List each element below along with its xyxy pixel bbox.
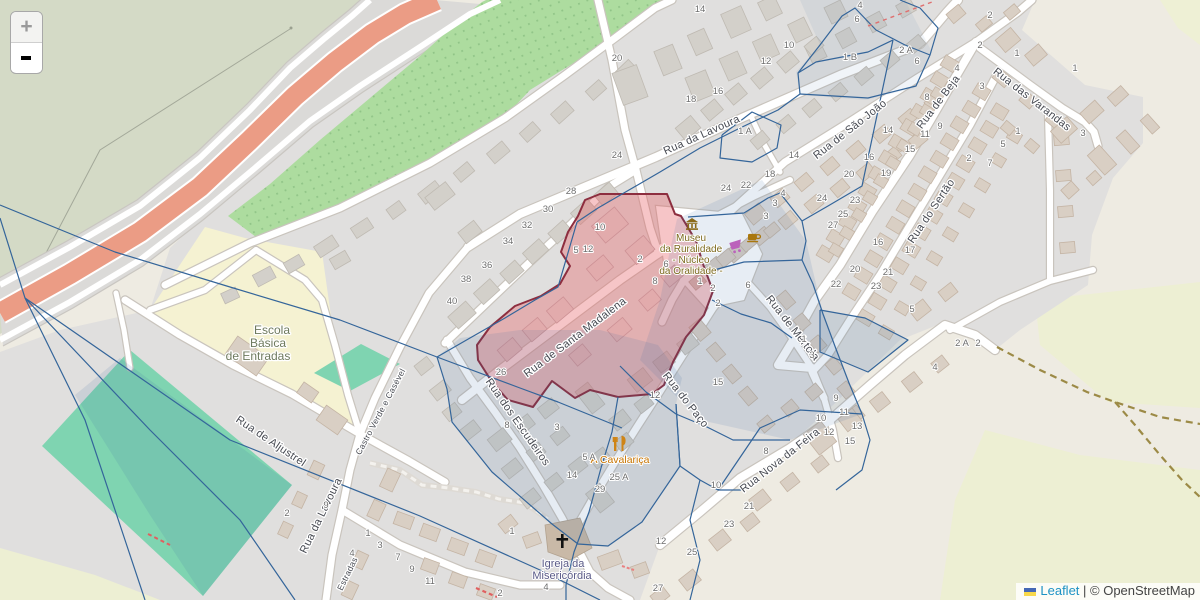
svg-text:4: 4 [349,548,354,559]
svg-text:da Ruralidade: da Ruralidade [660,244,723,255]
svg-text:32: 32 [522,220,533,231]
svg-text:1: 1 [365,528,370,539]
svg-text:Igreja da: Igreja da [542,558,586,570]
svg-text:2 A: 2 A [899,45,913,56]
svg-text:11: 11 [920,129,930,140]
svg-text:12: 12 [824,427,835,438]
svg-text:14: 14 [789,150,800,161]
svg-text:1: 1 [697,276,702,287]
svg-text:25 A: 25 A [609,472,629,483]
svg-text:10: 10 [784,40,795,51]
svg-text:24: 24 [817,193,828,204]
svg-text:1: 1 [1072,63,1077,74]
svg-text:15: 15 [845,436,856,447]
svg-text:12: 12 [583,244,594,255]
svg-text:40: 40 [447,296,458,307]
svg-text:10: 10 [816,413,827,424]
svg-text:14: 14 [883,125,894,136]
svg-text:9: 9 [409,564,414,575]
svg-text:5: 5 [909,304,914,315]
svg-text:5: 5 [573,245,578,256]
svg-text:3: 3 [763,211,768,222]
svg-text:1: 1 [1014,48,1019,59]
svg-text:6: 6 [914,56,919,67]
svg-text:7: 7 [987,158,992,169]
svg-text:da Oralidade -: da Oralidade - [659,266,722,277]
svg-text:9: 9 [833,393,838,404]
svg-text:12: 12 [656,536,667,547]
svg-text:36: 36 [482,260,493,271]
svg-text:4: 4 [954,63,959,74]
svg-text:3: 3 [377,540,382,551]
svg-text:23: 23 [850,195,861,206]
svg-text:Misericórdia: Misericórdia [532,570,592,582]
svg-text:9: 9 [937,121,942,132]
svg-text:2: 2 [497,588,502,599]
svg-text:15: 15 [713,377,724,388]
svg-text:12: 12 [650,390,661,401]
svg-text:de Entradas: de Entradas [226,349,291,363]
svg-text:21: 21 [883,267,894,278]
svg-text:24: 24 [612,150,623,161]
svg-text:25: 25 [687,547,698,558]
svg-text:2: 2 [975,338,980,349]
svg-text:4: 4 [543,582,548,593]
svg-text:18: 18 [686,94,697,105]
svg-text:9: 9 [323,500,328,511]
svg-text:38: 38 [461,274,472,285]
svg-text:16: 16 [713,86,724,97]
svg-text:14: 14 [567,470,578,481]
svg-text:11: 11 [425,576,435,587]
svg-text:20: 20 [844,169,855,180]
svg-text:Básica: Básica [250,336,286,350]
svg-text:4: 4 [932,362,937,373]
svg-text:2: 2 [284,508,289,519]
svg-text:7: 7 [395,552,400,563]
svg-text:1: 1 [509,526,514,537]
svg-text:20: 20 [850,264,861,275]
svg-text:23: 23 [871,281,882,292]
svg-text:6: 6 [745,280,750,291]
svg-text:12: 12 [761,56,772,67]
svg-text:2 A: 2 A [955,338,969,349]
svg-text:26: 26 [496,367,507,378]
svg-text:14: 14 [695,4,706,15]
svg-text:- Núcleo: - Núcleo [672,255,710,266]
svg-text:5 A: 5 A [582,452,595,462]
svg-text:6: 6 [854,14,859,25]
svg-text:1: 1 [801,334,806,345]
svg-text:1 A: 1 A [738,126,752,137]
svg-text:2: 2 [710,283,715,294]
svg-text:8: 8 [924,92,929,103]
svg-text:1 B: 1 B [843,52,857,63]
svg-text:27: 27 [653,583,664,594]
svg-text:29: 29 [595,484,606,495]
svg-text:2: 2 [715,298,720,309]
svg-text:16: 16 [873,237,884,248]
svg-text:2: 2 [966,153,971,164]
svg-text:15: 15 [905,144,916,155]
svg-text:3: 3 [1080,128,1085,139]
svg-text:3: 3 [809,350,814,361]
svg-text:Museu: Museu [676,233,706,244]
svg-text:11: 11 [839,407,849,418]
svg-text:2: 2 [977,40,982,51]
svg-text:8: 8 [504,420,509,431]
svg-text:5: 5 [1000,139,1005,150]
svg-text:A Cavalariça: A Cavalariça [591,454,650,466]
svg-text:22: 22 [831,279,842,290]
svg-text:8: 8 [763,446,768,457]
svg-text:27: 27 [828,220,839,231]
svg-text:22: 22 [741,180,752,191]
svg-text:34: 34 [503,236,514,247]
svg-text:8: 8 [652,276,657,287]
svg-text:4: 4 [857,0,862,11]
svg-text:21: 21 [744,501,755,512]
svg-text:20: 20 [612,53,623,64]
svg-text:10: 10 [595,222,606,233]
svg-text:6: 6 [663,259,668,270]
svg-text:3: 3 [979,81,984,92]
svg-text:18: 18 [765,169,776,180]
svg-text:17: 17 [905,245,916,256]
svg-text:3: 3 [554,422,559,433]
svg-text:13: 13 [852,421,863,432]
svg-text:3: 3 [772,198,777,209]
svg-text:16: 16 [864,152,875,163]
svg-text:25: 25 [838,209,849,220]
svg-text:28: 28 [566,186,577,197]
svg-text:1: 1 [1015,126,1020,137]
svg-text:24: 24 [721,183,732,194]
svg-text:10: 10 [711,480,722,491]
svg-text:Escola: Escola [254,323,290,337]
svg-text:2: 2 [637,254,642,265]
svg-text:23: 23 [724,519,735,530]
svg-text:30: 30 [543,204,554,215]
svg-text:19: 19 [881,168,892,179]
svg-text:4: 4 [780,188,785,199]
svg-text:2: 2 [987,10,992,21]
